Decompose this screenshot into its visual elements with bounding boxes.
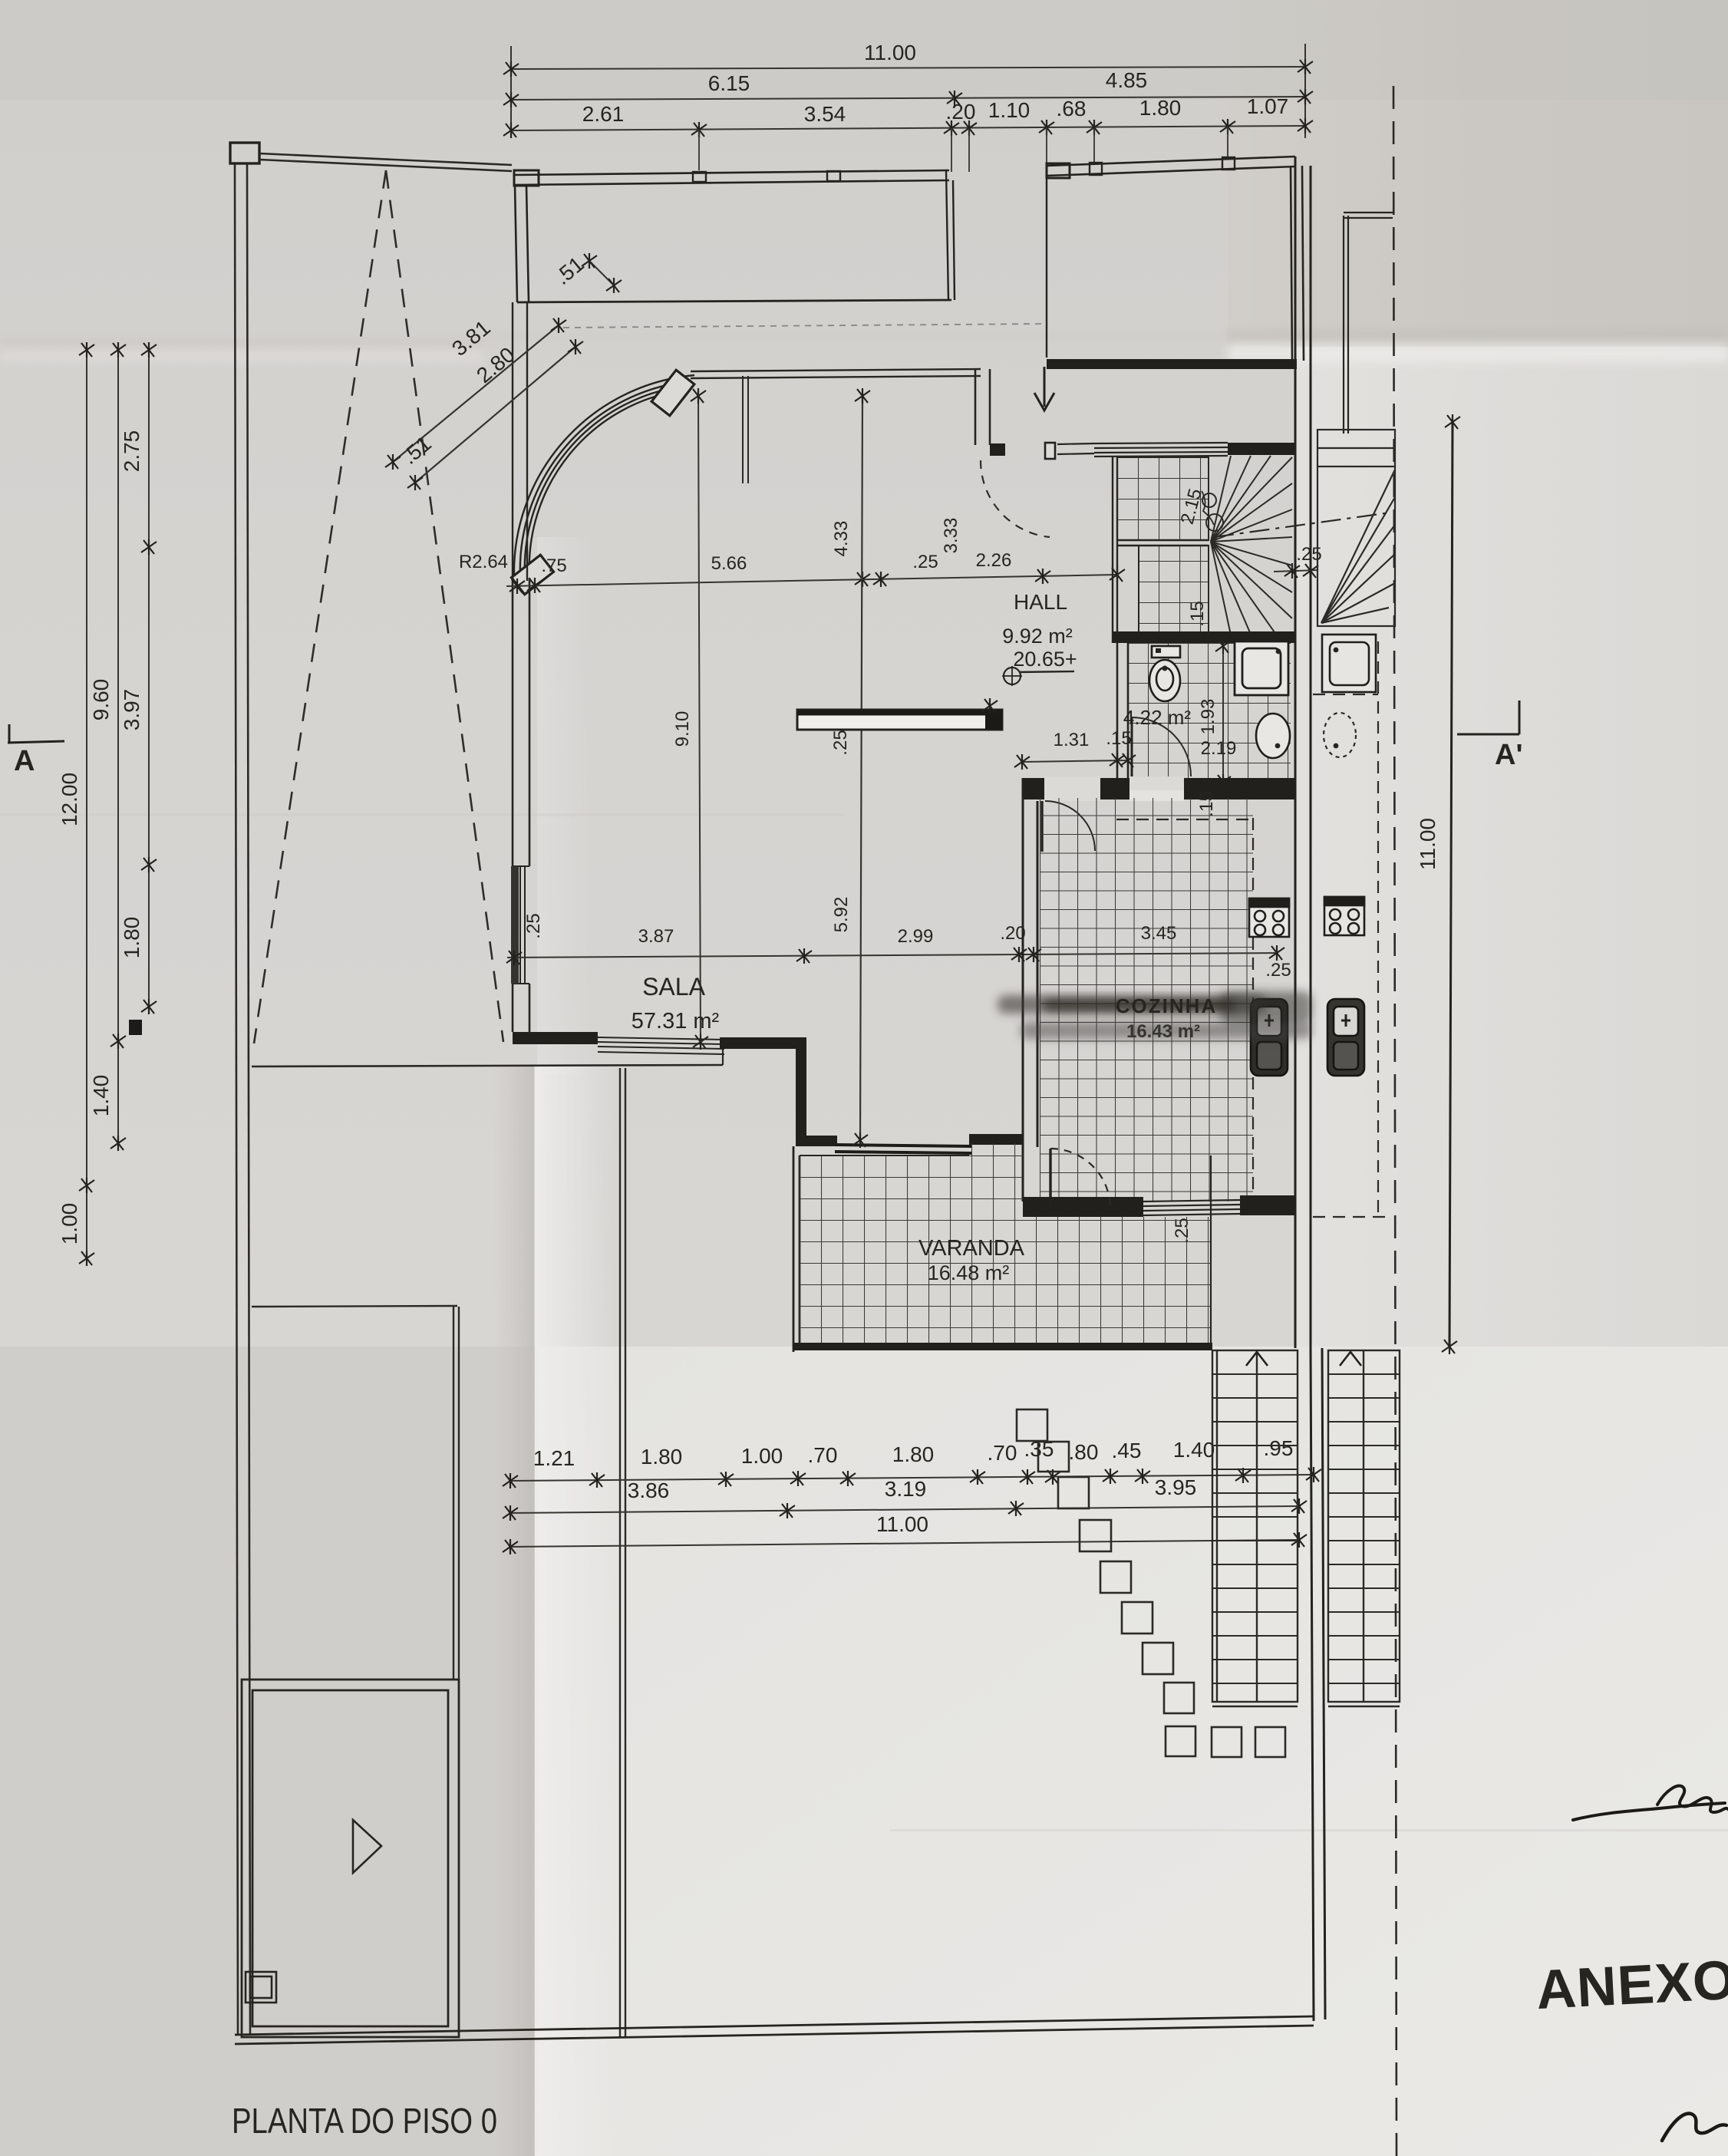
svg-text:3.95: 3.95 <box>1155 1475 1197 1499</box>
svg-text:6.15: 6.15 <box>708 71 750 95</box>
svg-text:ANEXO: ANEXO <box>1535 1950 1728 2022</box>
svg-text:HALL: HALL <box>1014 590 1067 614</box>
svg-text:11.00: 11.00 <box>876 1512 928 1536</box>
svg-text:1.80: 1.80 <box>1139 96 1182 120</box>
svg-text:1.00: 1.00 <box>741 1444 783 1468</box>
svg-text:3.87: 3.87 <box>638 926 674 947</box>
svg-text:9.10: 9.10 <box>672 711 693 747</box>
svg-text:.15: .15 <box>1106 728 1131 749</box>
svg-text:3.54: 3.54 <box>804 102 846 126</box>
svg-text:2.99: 2.99 <box>898 926 934 947</box>
svg-text:3.97: 3.97 <box>120 689 143 731</box>
svg-text:A: A <box>14 745 35 777</box>
svg-text:.45: .45 <box>1112 1439 1142 1462</box>
svg-text:1.93: 1.93 <box>1198 699 1219 735</box>
svg-text:5.92: 5.92 <box>831 897 852 933</box>
svg-text:11.00: 11.00 <box>1416 818 1439 870</box>
svg-text:2.26: 2.26 <box>976 550 1012 571</box>
svg-text:1.80: 1.80 <box>892 1442 935 1466</box>
svg-text:3.19: 3.19 <box>885 1477 927 1501</box>
svg-text:.25: .25 <box>523 913 544 938</box>
svg-text:2.61: 2.61 <box>582 102 625 126</box>
svg-text:.25: .25 <box>1265 960 1291 981</box>
svg-text:3.86: 3.86 <box>628 1479 670 1502</box>
svg-text:.75: .75 <box>541 555 566 576</box>
svg-text:COZINHA: COZINHA <box>1116 994 1217 1017</box>
svg-text:1.10: 1.10 <box>988 98 1031 122</box>
svg-text:.25: .25 <box>830 730 851 755</box>
svg-text:5.66: 5.66 <box>711 553 747 574</box>
svg-text:.70: .70 <box>808 1443 838 1467</box>
svg-text:57.31 m²: 57.31 m² <box>632 1009 720 1033</box>
svg-text:PLANTA DO PISO 0: PLANTA DO PISO 0 <box>232 2101 497 2141</box>
svg-text:.20: .20 <box>946 100 976 124</box>
svg-text:11.00: 11.00 <box>864 41 916 64</box>
svg-text:4.33: 4.33 <box>831 521 852 557</box>
svg-text:16.48 m²: 16.48 m² <box>928 1261 1010 1284</box>
svg-text:1.40: 1.40 <box>1173 1438 1215 1462</box>
svg-text:A': A' <box>1495 739 1522 771</box>
svg-text:.68: .68 <box>1057 97 1087 120</box>
svg-text:1.07: 1.07 <box>1247 94 1289 118</box>
svg-text:1.21: 1.21 <box>533 1446 575 1470</box>
svg-text:R2.64: R2.64 <box>459 552 508 572</box>
svg-text:2.19: 2.19 <box>1201 738 1237 759</box>
svg-text:.15: .15 <box>1187 601 1208 626</box>
svg-text:1.80: 1.80 <box>641 1445 683 1469</box>
svg-text:VARANDA: VARANDA <box>918 1236 1025 1261</box>
svg-text:16.43 m²: 16.43 m² <box>1126 1021 1200 1042</box>
svg-text:1.40: 1.40 <box>89 1075 113 1117</box>
svg-text:.80: .80 <box>1069 1440 1099 1464</box>
svg-text:20.65+: 20.65+ <box>1013 648 1077 671</box>
svg-text:1.80: 1.80 <box>120 917 143 959</box>
svg-text:.95: .95 <box>1264 1436 1294 1460</box>
svg-text:1.31: 1.31 <box>1054 730 1090 750</box>
svg-text:SALA: SALA <box>642 973 705 1001</box>
svg-text:1.00: 1.00 <box>58 1203 81 1245</box>
svg-text:9.92 m²: 9.92 m² <box>1002 625 1073 648</box>
svg-text:.70: .70 <box>988 1441 1017 1465</box>
svg-text:3.33: 3.33 <box>941 518 961 554</box>
svg-text:2.75: 2.75 <box>120 430 143 473</box>
svg-text:9.60: 9.60 <box>89 679 113 721</box>
svg-text:4.85: 4.85 <box>1106 68 1148 92</box>
svg-text:12.00: 12.00 <box>58 773 81 826</box>
svg-text:.25: .25 <box>912 552 938 572</box>
